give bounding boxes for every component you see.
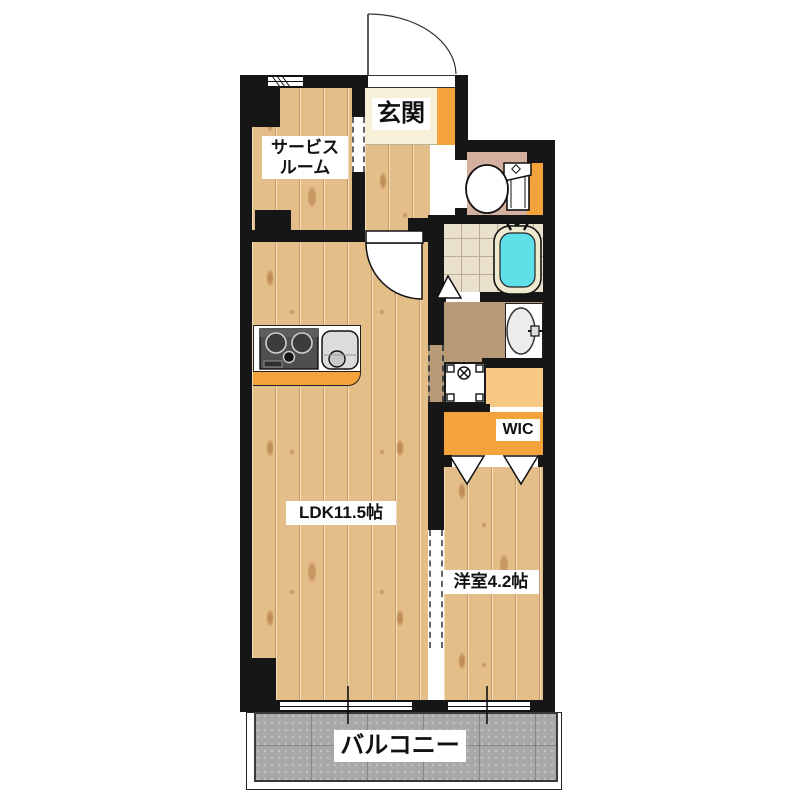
wall-serviceroom-bottom xyxy=(252,230,365,242)
floor-plan: サービス ルーム 玄関 WIC LDK11.5帖 洋室4.2帖 バルコニー xyxy=(0,0,800,800)
partition-opening xyxy=(428,648,444,700)
wic-label: WIC xyxy=(496,419,540,441)
shoe-cabinet xyxy=(437,87,455,152)
entrance-threshold xyxy=(368,75,455,88)
washbasin-unit xyxy=(505,303,543,360)
ldk-window xyxy=(280,700,412,712)
wic-upper-floor xyxy=(486,368,543,407)
wall-toilet-cabinet-top xyxy=(527,152,543,163)
wall-step-bottomleft xyxy=(240,658,276,712)
wall-washer-bottom xyxy=(428,404,490,412)
entrance-door-icon xyxy=(368,14,456,75)
kitchen-counter-front xyxy=(253,372,361,386)
washroom-door xyxy=(428,345,444,402)
western-room-label: 洋室4.2帖 xyxy=(443,570,539,594)
wall-outer-left xyxy=(240,75,252,712)
service-room-sliding-door xyxy=(352,117,365,172)
service-room-label-line1: サービス xyxy=(271,138,339,157)
wall-toilet-top xyxy=(455,140,555,152)
washing-machine-pan xyxy=(444,362,486,404)
wall-outer-right xyxy=(543,140,555,712)
wic-door-opening xyxy=(452,455,538,467)
wall-bath-top xyxy=(428,215,543,224)
service-room-label: サービス ルーム xyxy=(262,136,348,179)
toilet-cabinet xyxy=(527,163,543,215)
western-room-window xyxy=(448,700,530,712)
wall-wic-bottom-left xyxy=(428,455,452,467)
sliding-door xyxy=(429,530,443,648)
wall-toilet-left-a xyxy=(455,152,467,160)
wall-notch-topleft xyxy=(252,87,280,127)
balcony-label: バルコニー xyxy=(334,730,466,762)
ldk-label: LDK11.5帖 xyxy=(286,501,396,525)
service-room-label-line2: ルーム xyxy=(280,158,331,177)
wall-wic-bottom-right xyxy=(538,455,543,467)
wall-bottom-3 xyxy=(530,700,555,712)
corridor-floor xyxy=(430,145,455,215)
bath-door-gap xyxy=(446,292,480,302)
kitchen-counter xyxy=(253,325,361,372)
wall-ldk-right-a xyxy=(428,215,444,345)
wall-bottom-2 xyxy=(412,700,448,712)
entrance-label: 玄関 xyxy=(372,98,430,130)
wall-hall-stub xyxy=(408,218,430,242)
service-room-window xyxy=(268,75,303,88)
toilet-room-floor xyxy=(467,152,527,215)
ldk-floor xyxy=(252,242,428,700)
wall-washroom-bottom xyxy=(482,358,543,368)
bathroom-floor xyxy=(444,224,543,292)
